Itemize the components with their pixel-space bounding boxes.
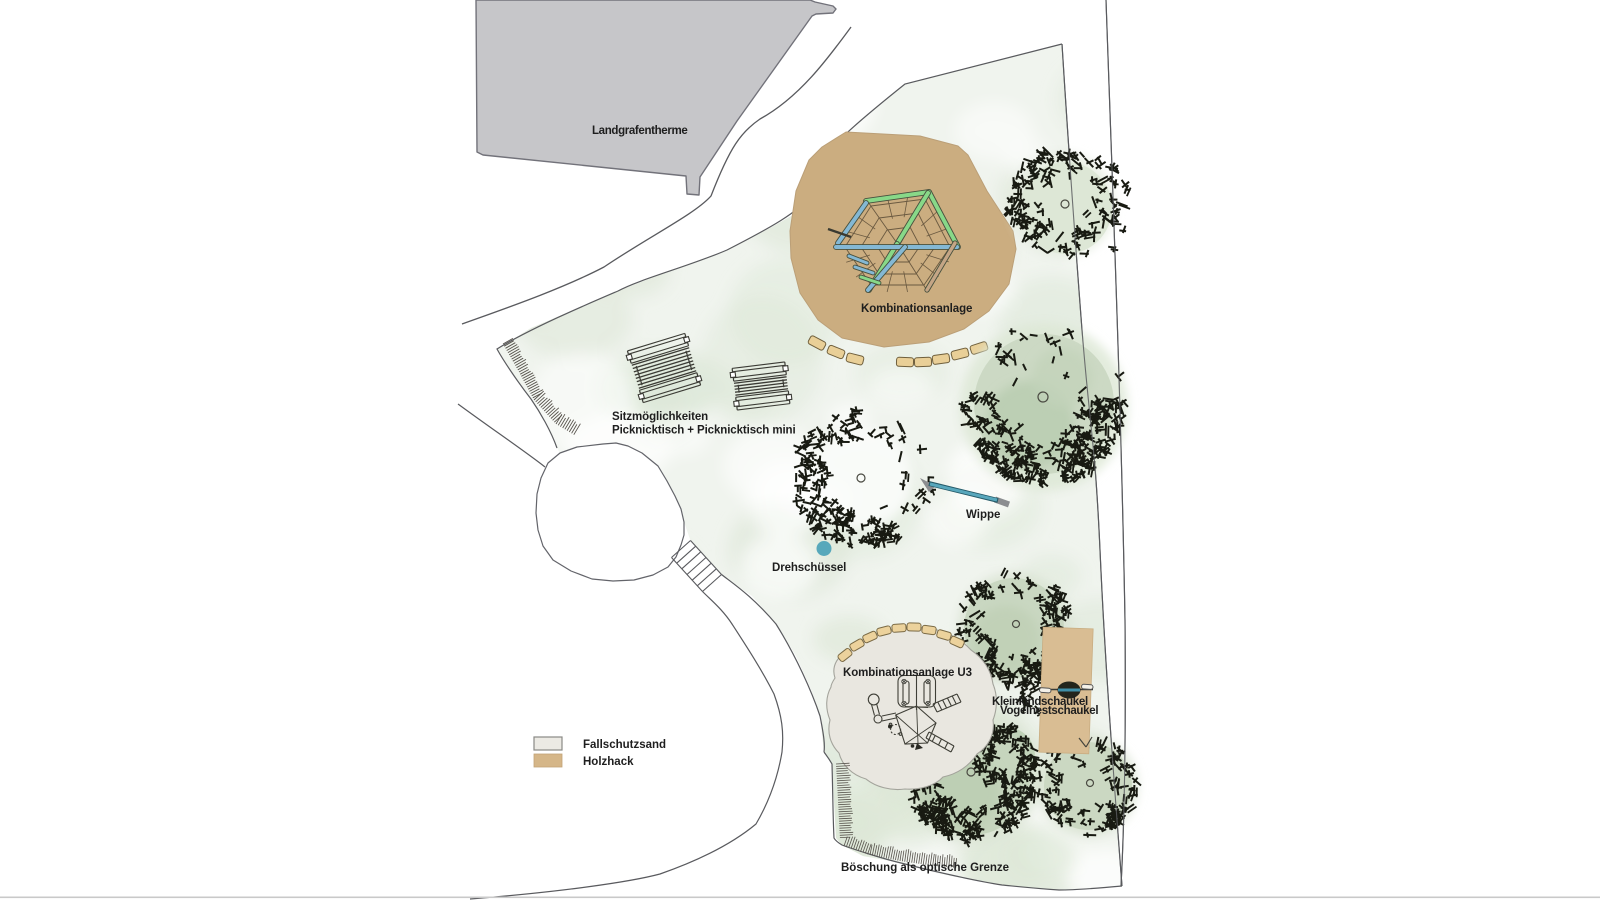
svg-text:Picknicktisch + Picknicktisch: Picknicktisch + Picknicktisch mini [612,425,796,437]
svg-text:Vogelnestschaukel: Vogelnestschaukel [1000,705,1098,717]
svg-text:Landgrafentherme: Landgrafentherme [592,125,687,137]
svg-text:Sitzmöglichkeiten: Sitzmöglichkeiten [612,411,708,423]
svg-text:Fallschutzsand: Fallschutzsand [583,739,666,751]
svg-text:Kombinationsanlage U3: Kombinationsanlage U3 [843,667,972,679]
svg-text:Böschung als optische Grenze: Böschung als optische Grenze [841,862,1009,874]
svg-text:Kombinationsanlage: Kombinationsanlage [861,303,972,315]
svg-text:Holzhack: Holzhack [583,756,634,768]
svg-text:Drehschüssel: Drehschüssel [772,562,846,574]
svg-text:Wippe: Wippe [966,509,1000,521]
